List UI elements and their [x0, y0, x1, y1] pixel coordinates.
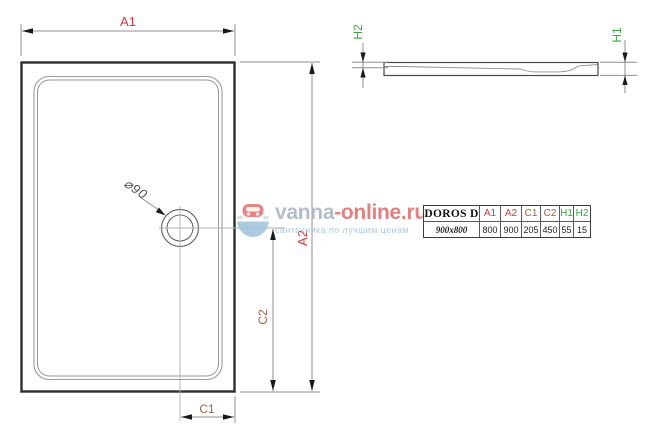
- shower-tray-technical-drawing: A1 A2 C2 C1 H2 H1 ⌀90 vanna-online.ru са…: [0, 0, 650, 442]
- table-model-header: DOROS D: [424, 206, 480, 222]
- table-value-c2: 450: [541, 222, 560, 237]
- watermark-tagline: сантехника по лучшим ценам: [275, 225, 427, 235]
- table-value-c1: 205: [522, 222, 541, 237]
- dim-label-a1: A1: [98, 14, 158, 30]
- table-col-header-a2: A2: [501, 206, 522, 222]
- watermark-logo-icon: [236, 201, 270, 243]
- side-view: [384, 63, 598, 76]
- watermark-text-block: vanna-online.ru сантехника по лучшим цен…: [275, 201, 427, 235]
- spec-table: DOROS D A1 A2 C1 C2 H1 H2 900x800 800 90…: [423, 205, 591, 238]
- table-col-header-h2: H2: [574, 206, 590, 222]
- watermark: vanna-online.ru сантехника по лучшим цен…: [236, 201, 427, 243]
- watermark-brand-primary: vanna: [275, 201, 334, 224]
- watermark-brand: vanna-online.ru: [275, 201, 427, 225]
- watermark-brand-secondary: -online.ru: [334, 201, 427, 224]
- profile-outline: [384, 63, 598, 76]
- table-value-a2: 900: [501, 222, 522, 237]
- table-col-header-c2: C2: [541, 206, 560, 222]
- dim-label-c1: C1: [193, 401, 221, 417]
- tray-outline: [22, 63, 235, 392]
- table-col-header-a1: A1: [480, 206, 501, 222]
- dim-label-h1: H1: [609, 22, 625, 48]
- table-value-h2: 15: [574, 222, 590, 237]
- table-value-h1: 55: [560, 222, 574, 237]
- dim-label-c2: C2: [255, 304, 271, 330]
- table-col-header-c1: C1: [522, 206, 541, 222]
- dim-label-h2: H2: [350, 19, 366, 45]
- table-col-header-h1: H1: [560, 206, 574, 222]
- table-value-a1: 800: [480, 222, 501, 237]
- table-size-value: 900x800: [424, 222, 480, 237]
